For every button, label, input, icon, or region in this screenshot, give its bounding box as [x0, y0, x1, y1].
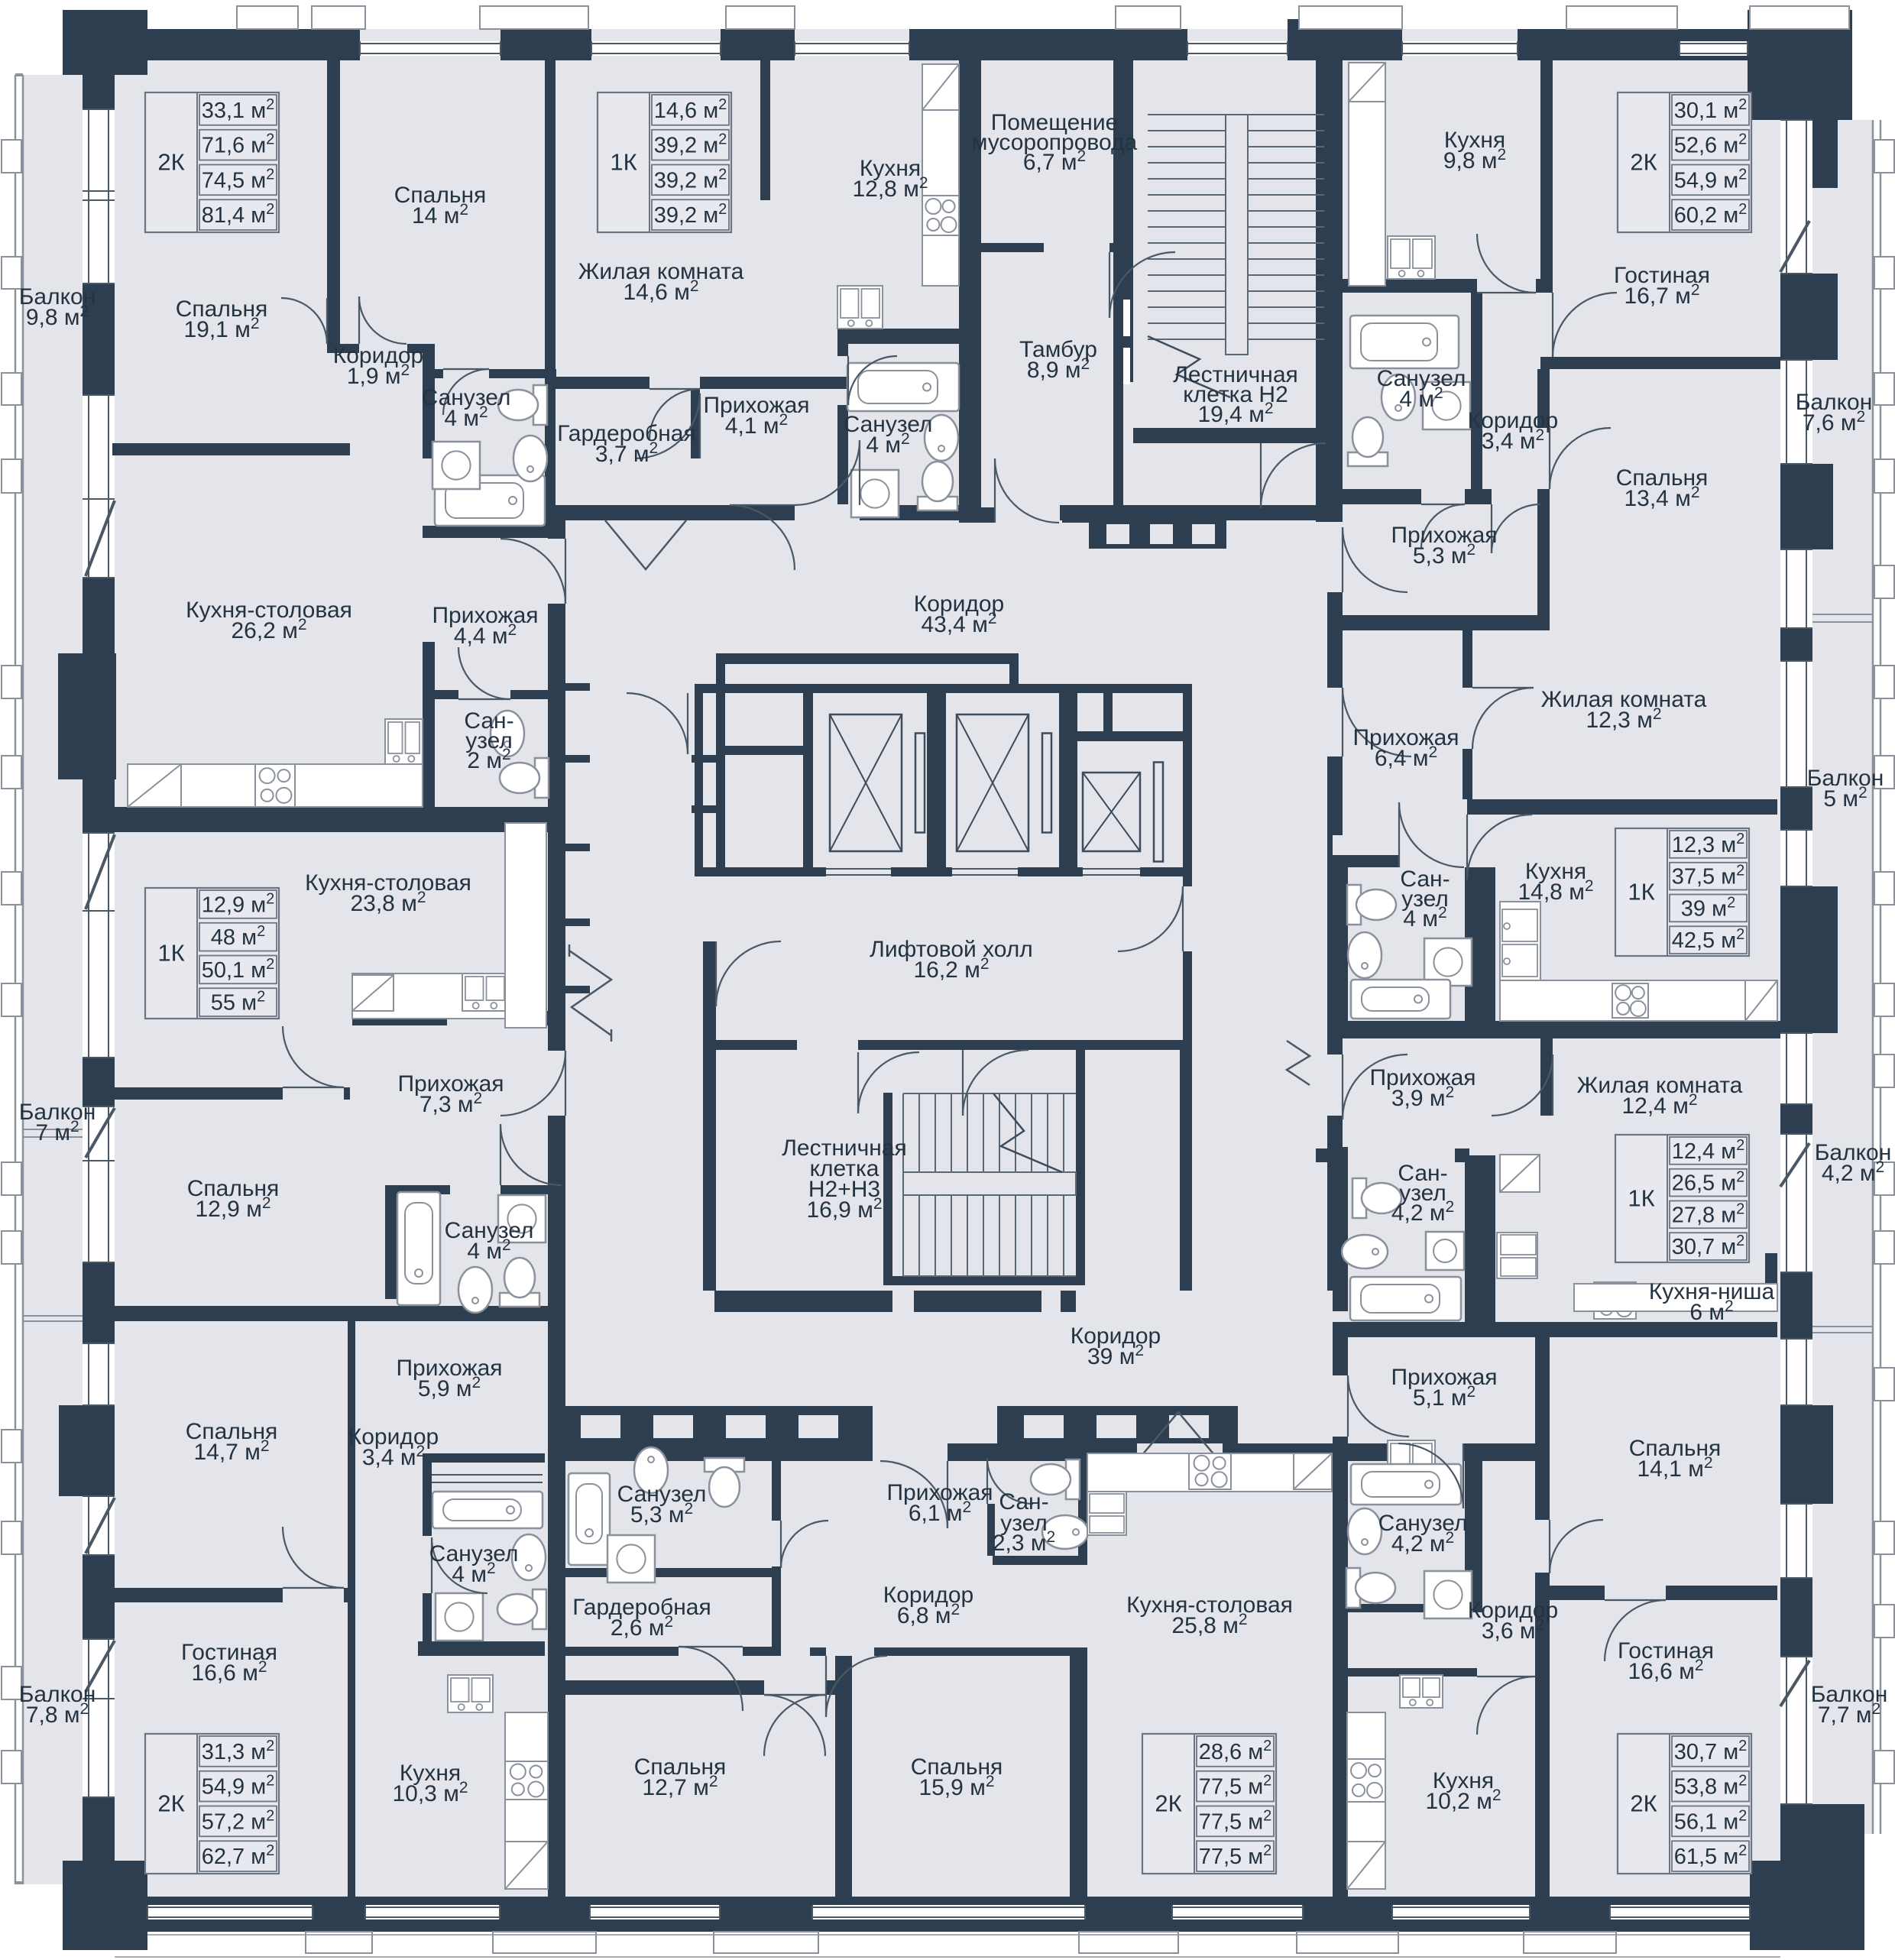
- svg-text:14,6 м2: 14,6 м2: [623, 277, 698, 305]
- svg-text:2К: 2К: [1630, 149, 1657, 176]
- svg-text:19,4 м2: 19,4 м2: [1197, 400, 1273, 427]
- svg-text:2,6 м2: 2,6 м2: [611, 1613, 673, 1641]
- svg-text:4,1 м2: 4,1 м2: [725, 411, 788, 439]
- svg-text:2К: 2К: [157, 149, 184, 176]
- svg-text:77,5 м2: 77,5 м2: [1199, 1842, 1272, 1869]
- svg-text:2К: 2К: [1630, 1790, 1657, 1817]
- svg-text:15,9 м2: 15,9 м2: [918, 1773, 994, 1800]
- svg-text:53,8 м2: 53,8 м2: [1674, 1773, 1748, 1800]
- svg-text:52,6 м2: 52,6 м2: [1674, 131, 1748, 158]
- svg-text:14,8 м2: 14,8 м2: [1518, 877, 1593, 905]
- svg-text:33,1 м2: 33,1 м2: [202, 96, 275, 123]
- svg-text:77,5 м2: 77,5 м2: [1199, 1807, 1272, 1834]
- svg-text:14,1 м2: 14,1 м2: [1637, 1454, 1712, 1482]
- svg-text:4,4 м2: 4,4 м2: [454, 621, 517, 649]
- svg-text:42,5 м2: 42,5 м2: [1672, 926, 1745, 953]
- svg-text:56,1 м2: 56,1 м2: [1674, 1807, 1748, 1834]
- svg-text:25,8 м2: 25,8 м2: [1171, 1611, 1247, 1638]
- svg-text:10,2 м2: 10,2 м2: [1425, 1787, 1501, 1814]
- svg-text:30,7 м2: 30,7 м2: [1674, 1738, 1748, 1764]
- svg-text:3,4 м2: 3,4 м2: [362, 1443, 425, 1470]
- svg-text:19,1 м2: 19,1 м2: [183, 315, 259, 342]
- svg-text:23,8 м2: 23,8 м2: [350, 889, 426, 916]
- svg-text:3,6 м2: 3,6 м2: [1482, 1616, 1544, 1644]
- svg-text:1К: 1К: [1628, 879, 1654, 905]
- svg-text:26,2 м2: 26,2 м2: [231, 616, 306, 643]
- svg-text:71,6 м2: 71,6 м2: [202, 131, 275, 158]
- svg-text:39,2 м2: 39,2 м2: [654, 131, 727, 158]
- svg-text:54,9 м2: 54,9 м2: [1674, 166, 1748, 193]
- svg-text:81,4 м2: 81,4 м2: [202, 201, 275, 228]
- svg-text:1К: 1К: [1628, 1185, 1654, 1212]
- svg-text:6,7 м2: 6,7 м2: [1023, 147, 1086, 175]
- svg-text:50,1 м2: 50,1 м2: [202, 956, 275, 983]
- svg-text:30,7 м2: 30,7 м2: [1672, 1233, 1745, 1259]
- svg-text:62,7 м2: 62,7 м2: [202, 1842, 275, 1869]
- svg-text:43,4 м2: 43,4 м2: [921, 610, 996, 637]
- svg-text:3,4 м2: 3,4 м2: [1482, 426, 1544, 454]
- svg-text:27,8 м2: 27,8 м2: [1672, 1200, 1745, 1227]
- svg-text:16,6 м2: 16,6 м2: [191, 1658, 267, 1686]
- svg-text:12,4 м2: 12,4 м2: [1621, 1091, 1697, 1119]
- svg-text:7,8 м2: 7,8 м2: [26, 1700, 89, 1728]
- svg-text:61,5 м2: 61,5 м2: [1674, 1842, 1748, 1869]
- svg-text:57,2 м2: 57,2 м2: [202, 1807, 275, 1834]
- svg-text:5,3 м2: 5,3 м2: [1413, 541, 1476, 569]
- svg-text:3,9 м2: 3,9 м2: [1391, 1084, 1454, 1111]
- svg-text:2,3 м2: 2,3 м2: [993, 1528, 1055, 1556]
- svg-text:10,3 м2: 10,3 м2: [392, 1779, 468, 1806]
- svg-text:2К: 2К: [157, 1790, 184, 1817]
- svg-text:60,2 м2: 60,2 м2: [1674, 201, 1748, 228]
- svg-text:31,3 м2: 31,3 м2: [202, 1738, 275, 1764]
- svg-text:4,2 м2: 4,2 м2: [1822, 1158, 1884, 1186]
- svg-text:8,9 м2: 8,9 м2: [1027, 355, 1090, 383]
- svg-text:13,4 м2: 13,4 м2: [1624, 484, 1699, 511]
- svg-text:16,7 м2: 16,7 м2: [1624, 281, 1699, 309]
- svg-text:74,5 м2: 74,5 м2: [202, 166, 275, 193]
- svg-text:39,2 м2: 39,2 м2: [654, 201, 727, 228]
- svg-text:28,6 м2: 28,6 м2: [1199, 1738, 1272, 1764]
- svg-text:6,4 м2: 6,4 м2: [1375, 744, 1437, 771]
- svg-text:12,7 м2: 12,7 м2: [642, 1773, 718, 1800]
- svg-text:54,9 м2: 54,9 м2: [202, 1773, 275, 1800]
- svg-text:16,9 м2: 16,9 м2: [806, 1195, 882, 1223]
- svg-text:16,2 м2: 16,2 м2: [913, 955, 989, 983]
- svg-text:3,7 м2: 3,7 м2: [595, 439, 658, 467]
- svg-text:7,7 м2: 7,7 м2: [1818, 1700, 1880, 1728]
- svg-text:1К: 1К: [157, 940, 184, 967]
- svg-text:1,9 м2: 1,9 м2: [347, 361, 410, 389]
- svg-text:5,9 м2: 5,9 м2: [418, 1374, 481, 1401]
- svg-text:16,6 м2: 16,6 м2: [1628, 1657, 1703, 1684]
- svg-text:30,1 м2: 30,1 м2: [1674, 96, 1748, 123]
- svg-text:12,9 м2: 12,9 м2: [202, 890, 275, 917]
- svg-text:4,2 м2: 4,2 м2: [1391, 1529, 1454, 1557]
- svg-text:14,6 м2: 14,6 м2: [654, 96, 727, 123]
- svg-text:12,3 м2: 12,3 м2: [1586, 705, 1661, 733]
- svg-text:7,3 м2: 7,3 м2: [419, 1090, 482, 1117]
- svg-text:9,8 м2: 9,8 м2: [26, 303, 89, 330]
- svg-text:12,3 м2: 12,3 м2: [1672, 831, 1745, 857]
- svg-text:12,8 м2: 12,8 м2: [852, 174, 928, 202]
- svg-text:6,8 м2: 6,8 м2: [897, 1601, 960, 1628]
- svg-text:26,5 м2: 26,5 м2: [1672, 1169, 1745, 1196]
- svg-text:2К: 2К: [1155, 1790, 1181, 1817]
- svg-text:37,5 м2: 37,5 м2: [1672, 863, 1745, 889]
- svg-text:7,6 м2: 7,6 м2: [1803, 408, 1865, 436]
- svg-text:9,8 м2: 9,8 м2: [1443, 146, 1506, 173]
- svg-text:1К: 1К: [610, 149, 637, 176]
- svg-text:14,7 м2: 14,7 м2: [193, 1437, 269, 1465]
- svg-text:4,2 м2: 4,2 м2: [1391, 1198, 1454, 1226]
- svg-text:77,5 м2: 77,5 м2: [1199, 1773, 1272, 1800]
- svg-text:12,9 м2: 12,9 м2: [195, 1194, 270, 1222]
- svg-text:5,1 м2: 5,1 м2: [1413, 1383, 1476, 1411]
- svg-text:5,3 м2: 5,3 м2: [630, 1500, 693, 1528]
- svg-text:39,2 м2: 39,2 м2: [654, 166, 727, 193]
- svg-text:12,4 м2: 12,4 м2: [1672, 1137, 1745, 1164]
- svg-text:6,1 м2: 6,1 м2: [909, 1498, 971, 1526]
